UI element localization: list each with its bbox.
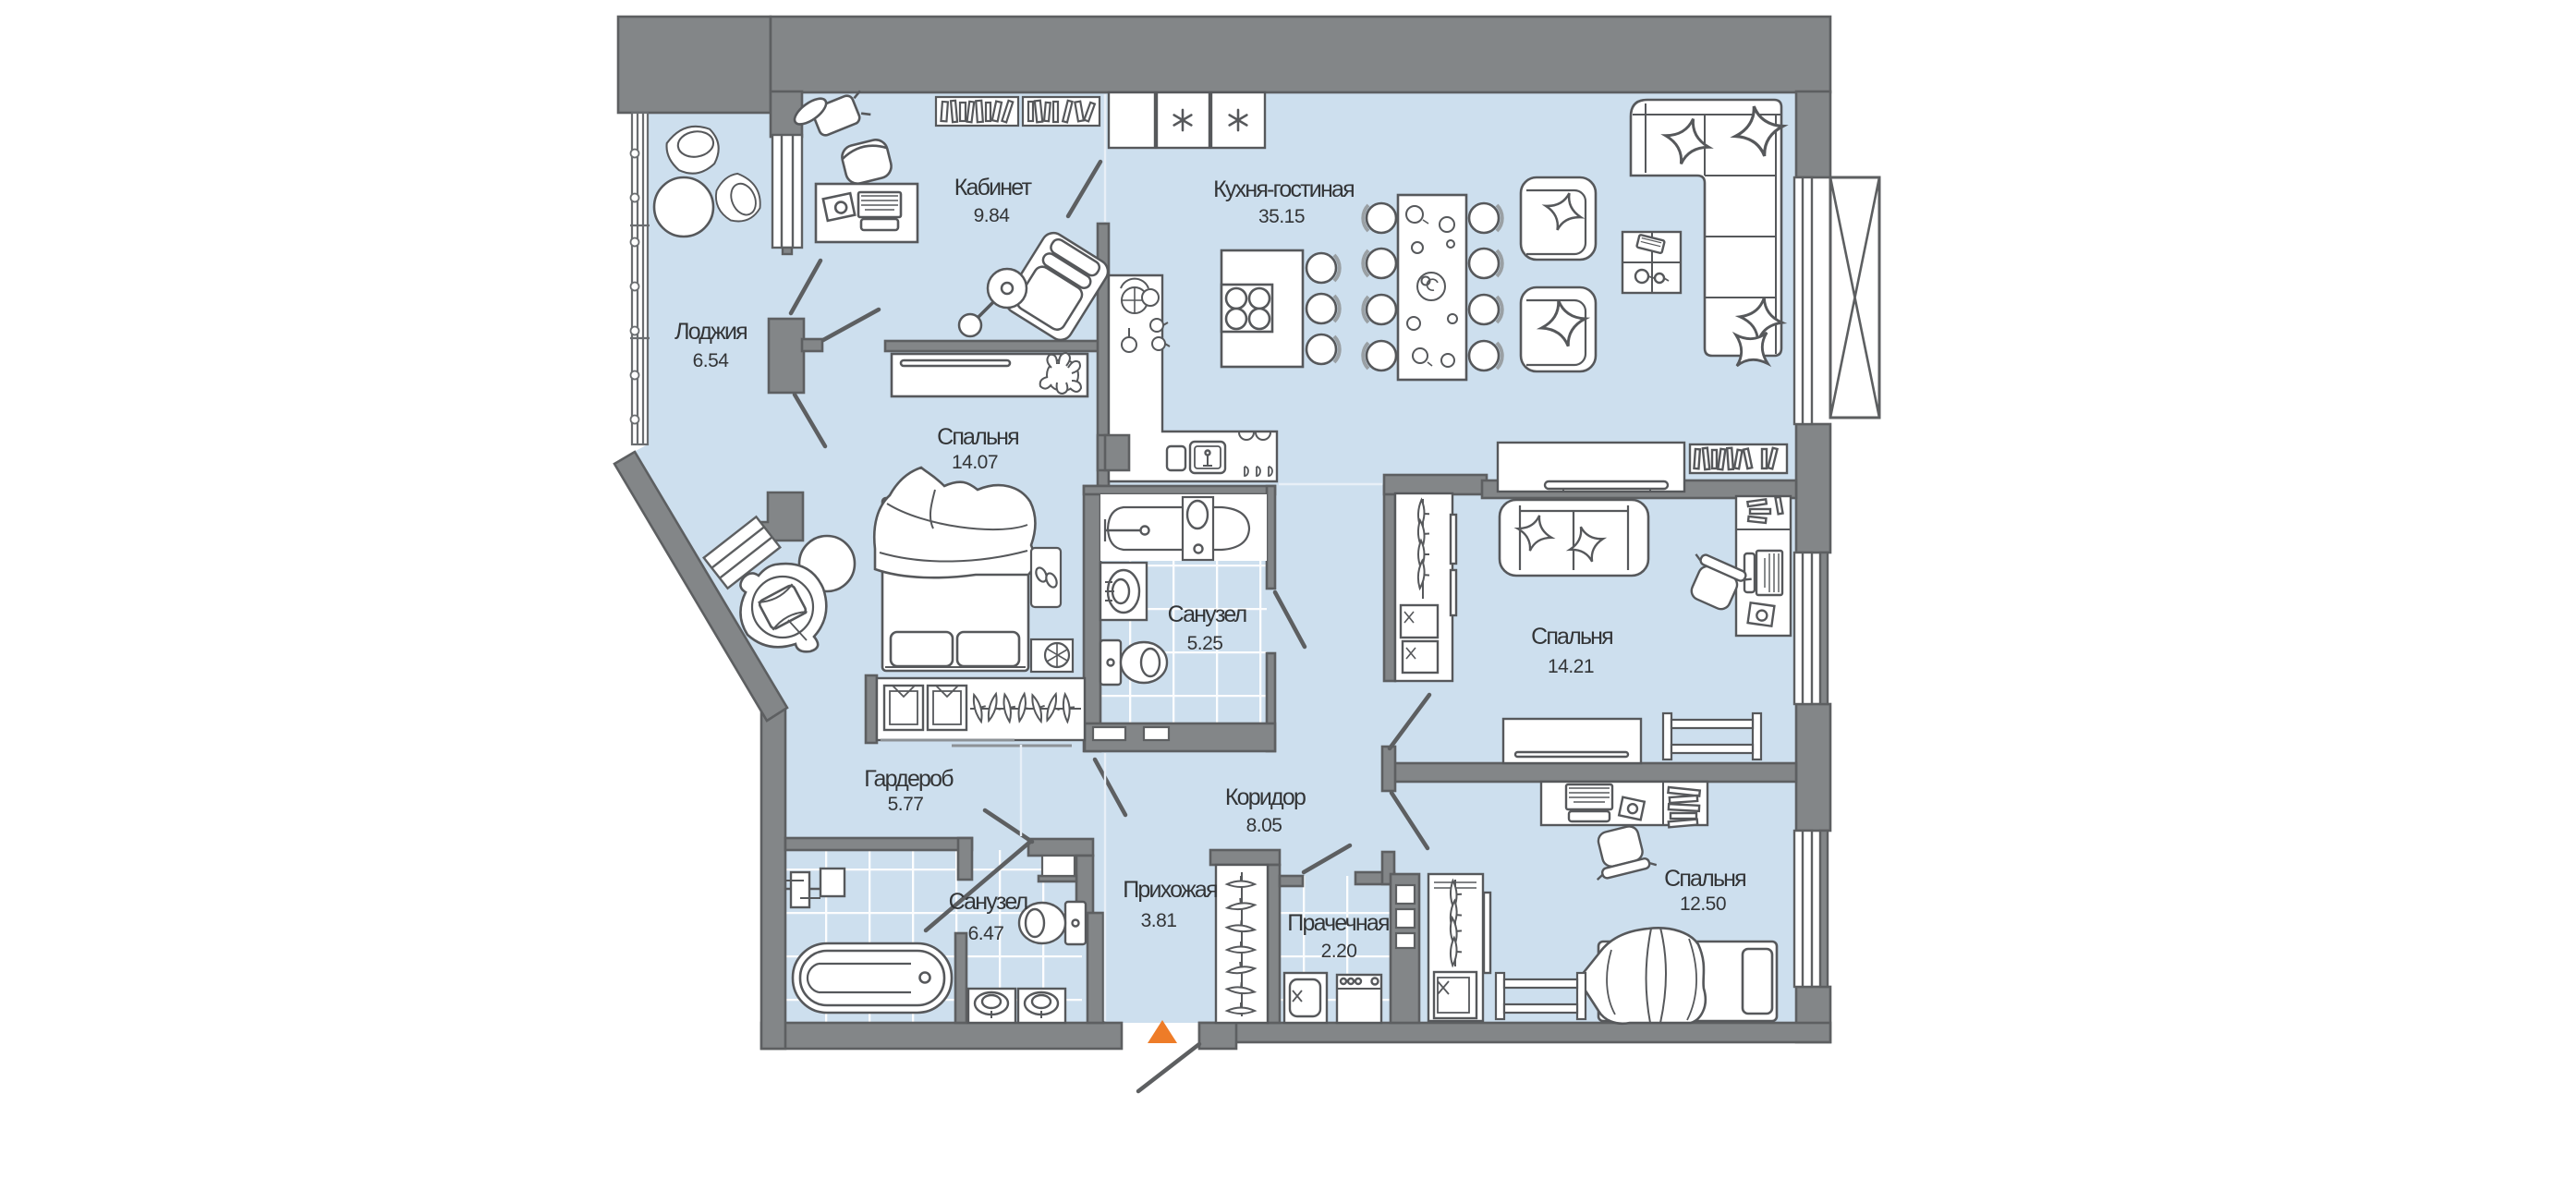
svg-text:Лоджия: Лоджия	[674, 319, 747, 345]
svg-text:5.77: 5.77	[888, 794, 924, 815]
svg-text:Прихожая: Прихожая	[1123, 877, 1217, 903]
svg-text:8.05: 8.05	[1246, 815, 1282, 836]
svg-text:14.21: 14.21	[1548, 656, 1594, 677]
svg-text:Гардероб: Гардероб	[864, 766, 954, 792]
svg-text:Санузел: Санузел	[1168, 601, 1246, 627]
svg-text:9.84: 9.84	[974, 205, 1011, 226]
svg-text:6.54: 6.54	[693, 350, 730, 371]
svg-text:2.20: 2.20	[1321, 941, 1357, 962]
svg-text:35.15: 35.15	[1258, 206, 1305, 227]
svg-text:5.25: 5.25	[1187, 633, 1223, 654]
svg-text:Спальня: Спальня	[1664, 866, 1745, 892]
svg-text:Кабинет: Кабинет	[954, 175, 1033, 200]
svg-text:Прачечная: Прачечная	[1287, 910, 1389, 936]
svg-text:Санузел: Санузел	[949, 889, 1027, 915]
svg-text:Кухня-гостиная: Кухня-гостиная	[1213, 176, 1354, 202]
svg-text:14.07: 14.07	[952, 452, 998, 473]
svg-text:12.50: 12.50	[1680, 893, 1726, 915]
svg-text:3.81: 3.81	[1141, 910, 1177, 931]
svg-text:Спальня: Спальня	[1531, 624, 1612, 650]
svg-text:Коридор: Коридор	[1225, 784, 1306, 810]
svg-text:Спальня: Спальня	[937, 424, 1018, 450]
svg-text:6.47: 6.47	[968, 923, 1004, 944]
